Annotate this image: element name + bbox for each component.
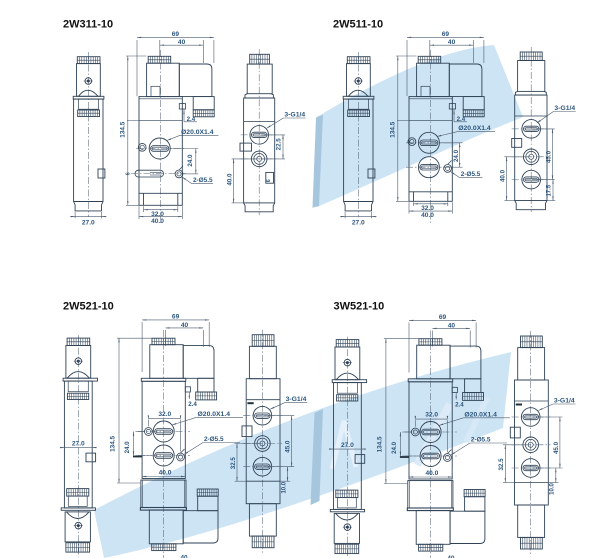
- svg-text:27.0: 27.0: [72, 440, 85, 447]
- svg-text:6: 6: [125, 172, 131, 175]
- svg-text:24.0: 24.0: [391, 441, 398, 454]
- svg-text:69: 69: [442, 31, 450, 38]
- svg-text:3-G1/4: 3-G1/4: [554, 398, 575, 405]
- svg-text:Ø20.0X1.4: Ø20.0X1.4: [198, 411, 231, 418]
- svg-text:134.5: 134.5: [110, 435, 117, 451]
- svg-text:24.0: 24.0: [187, 154, 194, 167]
- svg-text:2W311-10: 2W311-10: [63, 18, 113, 30]
- svg-text:2-Ø5.5: 2-Ø5.5: [461, 171, 481, 178]
- svg-text:32.5: 32.5: [230, 457, 237, 470]
- svg-text:2-Ø5.5: 2-Ø5.5: [471, 437, 491, 444]
- svg-text:40: 40: [448, 322, 456, 329]
- svg-text:40.0: 40.0: [159, 470, 172, 477]
- svg-text:10.0: 10.0: [550, 483, 556, 495]
- svg-text:40: 40: [178, 39, 186, 46]
- svg-text:32.5: 32.5: [498, 458, 505, 471]
- svg-text:24.0: 24.0: [124, 441, 131, 454]
- svg-text:Ø20.0X1.4: Ø20.0X1.4: [181, 129, 214, 136]
- svg-text:3-G1/4: 3-G1/4: [286, 396, 307, 403]
- svg-text:134.5: 134.5: [376, 436, 383, 452]
- svg-text:32.0: 32.0: [158, 411, 171, 418]
- svg-text:45.0: 45.0: [545, 150, 552, 163]
- svg-text:10.0: 10.0: [281, 481, 287, 493]
- svg-text:69: 69: [439, 314, 447, 321]
- svg-text:27.0: 27.0: [82, 220, 95, 227]
- svg-text:2-Ø5.5: 2-Ø5.5: [204, 436, 224, 443]
- svg-text:6: 6: [266, 179, 272, 182]
- svg-text:134.5: 134.5: [120, 121, 127, 137]
- svg-text:32.0: 32.0: [425, 412, 438, 419]
- svg-text:40: 40: [181, 322, 189, 329]
- svg-text:2.4: 2.4: [457, 116, 466, 123]
- svg-text:Ø20.0X1.4: Ø20.0X1.4: [464, 411, 497, 418]
- svg-text:2W521-10: 2W521-10: [63, 301, 114, 313]
- svg-text:3W521-10: 3W521-10: [334, 301, 385, 313]
- svg-text:40: 40: [180, 555, 188, 558]
- svg-text:69: 69: [172, 314, 180, 321]
- svg-text:3-G1/4: 3-G1/4: [284, 112, 305, 119]
- svg-text:45.0: 45.0: [285, 440, 292, 453]
- svg-text:27.0: 27.0: [352, 220, 365, 227]
- svg-text:45.0: 45.0: [553, 441, 560, 454]
- svg-text:Ø20.0X1.4: Ø20.0X1.4: [458, 125, 491, 132]
- svg-text:2.4: 2.4: [188, 401, 197, 408]
- svg-text:17.5: 17.5: [547, 184, 553, 196]
- svg-text:134.5: 134.5: [390, 121, 397, 137]
- svg-text:27.0: 27.0: [341, 442, 354, 449]
- svg-text:2-Ø5.5: 2-Ø5.5: [193, 177, 213, 184]
- svg-text:40.0: 40.0: [425, 470, 438, 477]
- svg-text:24.0: 24.0: [453, 149, 460, 162]
- svg-text:40: 40: [448, 39, 456, 46]
- svg-text:22.5: 22.5: [276, 138, 283, 151]
- svg-text:40.0: 40.0: [151, 218, 164, 225]
- svg-text:40.0: 40.0: [227, 173, 234, 186]
- svg-text:40.0: 40.0: [500, 169, 507, 182]
- svg-text:69: 69: [172, 31, 180, 38]
- svg-text:2W511-10: 2W511-10: [333, 18, 383, 30]
- svg-text:3-G1/4: 3-G1/4: [554, 105, 575, 112]
- svg-text:2.4: 2.4: [455, 401, 464, 408]
- svg-text:2.4: 2.4: [187, 116, 196, 123]
- svg-text:40.0: 40.0: [421, 212, 434, 219]
